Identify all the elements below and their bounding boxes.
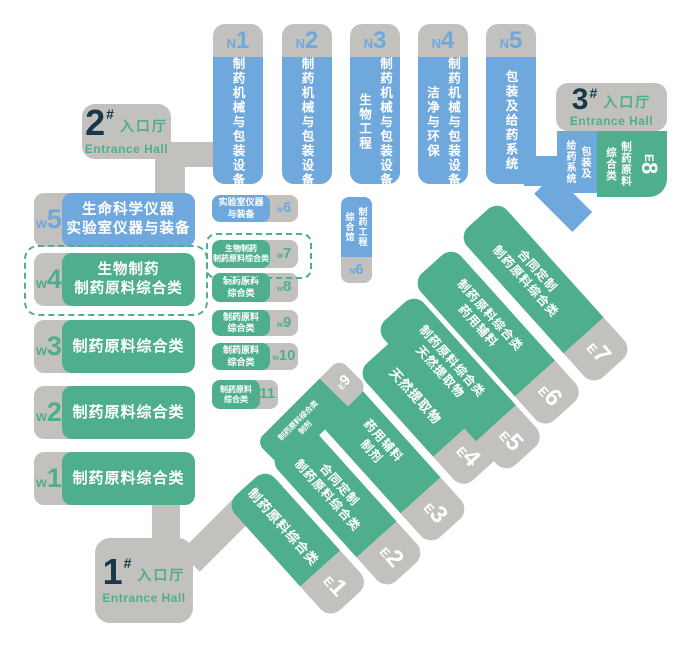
hall-n3-category: 制药机械与包装设备生物工程 (350, 57, 400, 184)
hall-n3: N3 制药机械与包装设备生物工程 (350, 24, 400, 184)
hall-e8-category: 制药原料 综合类 (604, 141, 634, 187)
hall-w1-category: 制药原料综合类 (62, 452, 195, 505)
entrance-hall-2-title: 2#入口厅 (85, 107, 168, 139)
entrance-2-cn: 入口厅 (120, 119, 168, 133)
hall-n4-category: 制药机械与包装设备洁净与环保 (418, 57, 468, 184)
hall-n2: N2 制药机械与包装设备 (282, 24, 332, 184)
entrance-1-number: 1 (103, 556, 123, 588)
hall-n6-category: 制药工程综合馆 (341, 197, 372, 257)
hall-w6-category: 实验室仪器与装备 (212, 195, 270, 222)
hall-n6: 制药工程综合馆 N6 (341, 197, 372, 283)
hall-n5-category: 包装及给药系统 (486, 57, 536, 184)
hall-n6-label: N6 (341, 257, 372, 283)
entrance-2-number: 2 (85, 107, 105, 139)
hall-n2-category: 制药机械与包装设备 (282, 57, 332, 184)
entrance-3-hash: # (589, 86, 597, 100)
hall-n5-label: N5 (486, 24, 536, 57)
entrance-3-en: Entrance Hall (570, 114, 653, 128)
entrance-1-cn: 入口厅 (137, 568, 185, 582)
entrance-2-en: Entrance Hall (85, 142, 168, 156)
hall-n2-label: N2 (282, 24, 332, 57)
entrance-1-en: Entrance Hall (102, 591, 185, 605)
hall-w1: w1 制药原料综合类 (34, 452, 195, 505)
entrance-hall-1-title: 1#入口厅 (103, 556, 186, 588)
hall-w9-category: 制药原料综合类 (212, 310, 270, 336)
hall-w7-highlight (206, 233, 312, 279)
hall-n4-label: N4 (418, 24, 468, 57)
entrance-hall-3-title: 3#入口厅 (572, 86, 651, 113)
expo-floorplan: { "colors":{"blue":"#6FA8DC","green":"#4… (0, 0, 700, 658)
entrance-1-hash: # (124, 556, 132, 570)
hall-w3: w3 制药原料综合类 (34, 320, 195, 373)
hall-w11: w11 制药原料综合类 (212, 380, 278, 409)
hall-w3-category: 制药原料综合类 (62, 320, 195, 373)
hall-e8: 制药原料 综合类 E8 (597, 131, 667, 197)
hall-w5: w5 生命科学仪器实验室仪器与装备 (34, 193, 195, 247)
hall-w4-highlight (24, 245, 208, 316)
entrance-hall-2: 2#入口厅 Entrance Hall (82, 104, 171, 159)
hall-n5: N5 包装及给药系统 (486, 24, 536, 184)
hall-w5-category: 生命科学仪器实验室仪器与装备 (62, 193, 195, 247)
hall-n1-category: 制药机械与包装设备 (213, 57, 263, 184)
hall-n3-label: N3 (350, 24, 400, 57)
hall-n1: N1 制药机械与包装设备 (213, 24, 263, 184)
entrance-hall-1: 1#入口厅 Entrance Hall (95, 538, 193, 623)
hall-w11-category: 制药原料综合类 (212, 380, 260, 409)
hall-w6: w6 实验室仪器与装备 (212, 195, 298, 222)
hall-w9: w9 制药原料综合类 (212, 310, 298, 336)
tab-packaging-drug-delivery: 包装及 给药系统 (557, 131, 597, 193)
hall-n4: N4 制药机械与包装设备洁净与环保 (418, 24, 468, 184)
hall-w10: w10 制药原料综合类 (212, 343, 298, 370)
hall-w10-category: 制药原料综合类 (212, 343, 270, 370)
entrance-hall-3: 3#入口厅 Entrance Hall (556, 83, 667, 131)
hall-n1-label: N1 (213, 24, 263, 57)
hall-w2-category: 制药原料综合类 (62, 386, 195, 439)
entrance-2-hash: # (106, 107, 114, 121)
entrance-3-number: 3 (572, 86, 589, 113)
entrance-3-cn: 入口厅 (603, 95, 651, 109)
hall-w2: w2 制药原料综合类 (34, 386, 195, 439)
hall-e8-label: E8 (638, 154, 660, 174)
